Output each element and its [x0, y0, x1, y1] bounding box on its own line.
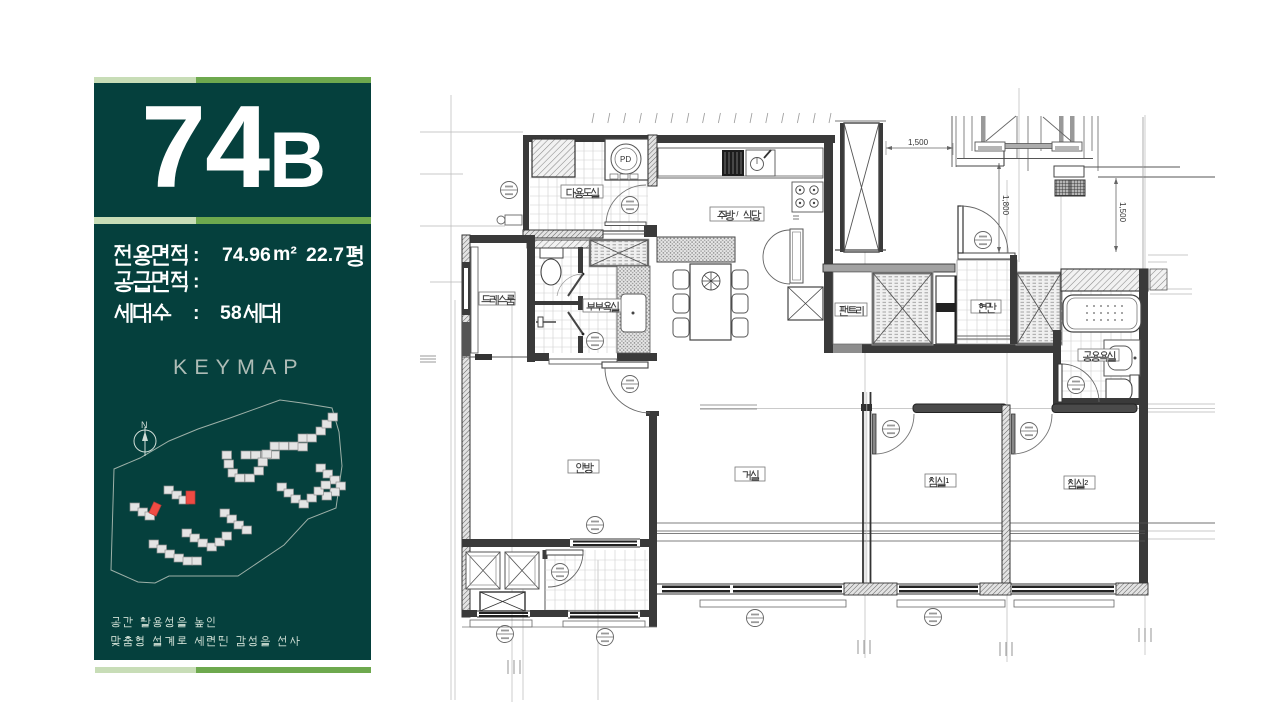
svg-text:m²: m²: [273, 243, 297, 265]
svg-text:58: 58: [220, 302, 242, 324]
svg-text:1,500: 1,500: [1118, 202, 1127, 223]
svg-text:/: /: [736, 210, 738, 219]
svg-text:N: N: [141, 420, 148, 430]
svg-text::: :: [193, 271, 200, 293]
svg-text:PD: PD: [620, 155, 631, 164]
svg-text::: :: [193, 302, 200, 324]
svg-text:KEYMAP: KEYMAP: [173, 355, 305, 379]
svg-text:2: 2: [1084, 478, 1088, 487]
svg-text:1: 1: [945, 476, 949, 485]
svg-text:22.7: 22.7: [306, 244, 344, 266]
svg-text:74.96: 74.96: [222, 244, 271, 266]
svg-text:1,800: 1,800: [1001, 195, 1010, 216]
svg-text:1,500: 1,500: [908, 138, 929, 147]
svg-text::: :: [193, 244, 200, 266]
